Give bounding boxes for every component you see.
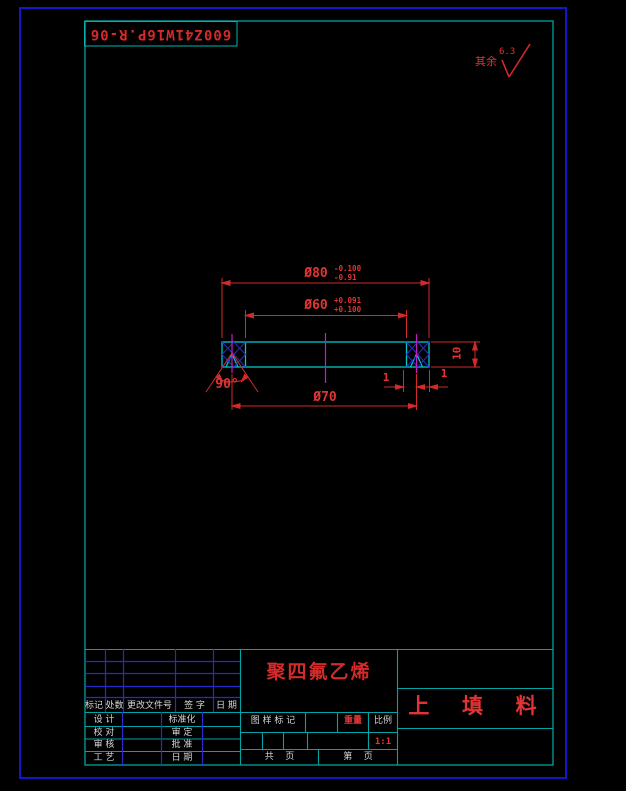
scale-label: 比例 bbox=[369, 716, 397, 726]
sign-date-label: 日 期 bbox=[162, 753, 202, 763]
dim-angle-label: 90° bbox=[213, 378, 241, 393]
surface-note-label: 其余 bbox=[472, 56, 500, 69]
rev-header-count: 处数 bbox=[105, 701, 124, 711]
dim-d80-label: Ø80 bbox=[300, 267, 332, 282]
drawing-sheet: 600Z41W16P.R-06 其余 6.3 Ø80 -0.100 -0.91 … bbox=[0, 0, 626, 791]
weight-label: 重量 bbox=[338, 716, 368, 726]
rev-header-mark: 标记 bbox=[83, 701, 105, 711]
sign-process-label: 工 艺 bbox=[86, 753, 122, 763]
sign-design-label: 设 计 bbox=[86, 715, 122, 725]
dim-d80-tol-lower: -0.91 bbox=[334, 274, 368, 283]
dim-d60-label: Ø60 bbox=[300, 299, 332, 314]
page-no-label: 第 页 bbox=[319, 752, 397, 762]
dim-notch-right-label: 1 bbox=[439, 368, 449, 381]
dim-d70-label: Ø70 bbox=[308, 391, 342, 406]
dim-notch-left-label: 1 bbox=[381, 372, 391, 385]
rev-header-date: 日 期 bbox=[213, 701, 240, 711]
part-number: 600Z41W16P.R-06 bbox=[84, 21, 237, 46]
sign-standard-label: 标准化 bbox=[162, 715, 202, 725]
rev-header-docno: 更改文件号 bbox=[124, 701, 175, 711]
rev-header-sign: 签 字 bbox=[176, 701, 213, 711]
material-name: 聚四氟乙烯 bbox=[240, 662, 398, 684]
dim-d60-tol-lower: +0.100 bbox=[334, 306, 368, 315]
pages-total-label: 共 页 bbox=[241, 752, 318, 762]
part-name: 上 填 料 bbox=[398, 694, 553, 718]
sign-check-label: 校 对 bbox=[86, 728, 122, 738]
stamp-label: 图 样 标 记 bbox=[241, 716, 305, 726]
scale-value: 1:1 bbox=[369, 737, 397, 747]
dim-height-label: 10 bbox=[452, 342, 465, 364]
sign-approve2-label: 批 准 bbox=[162, 740, 202, 750]
sign-approve1-label: 审 定 bbox=[162, 728, 202, 738]
surface-note-value: 6.3 bbox=[499, 47, 519, 57]
sign-review-label: 审 核 bbox=[86, 740, 122, 750]
